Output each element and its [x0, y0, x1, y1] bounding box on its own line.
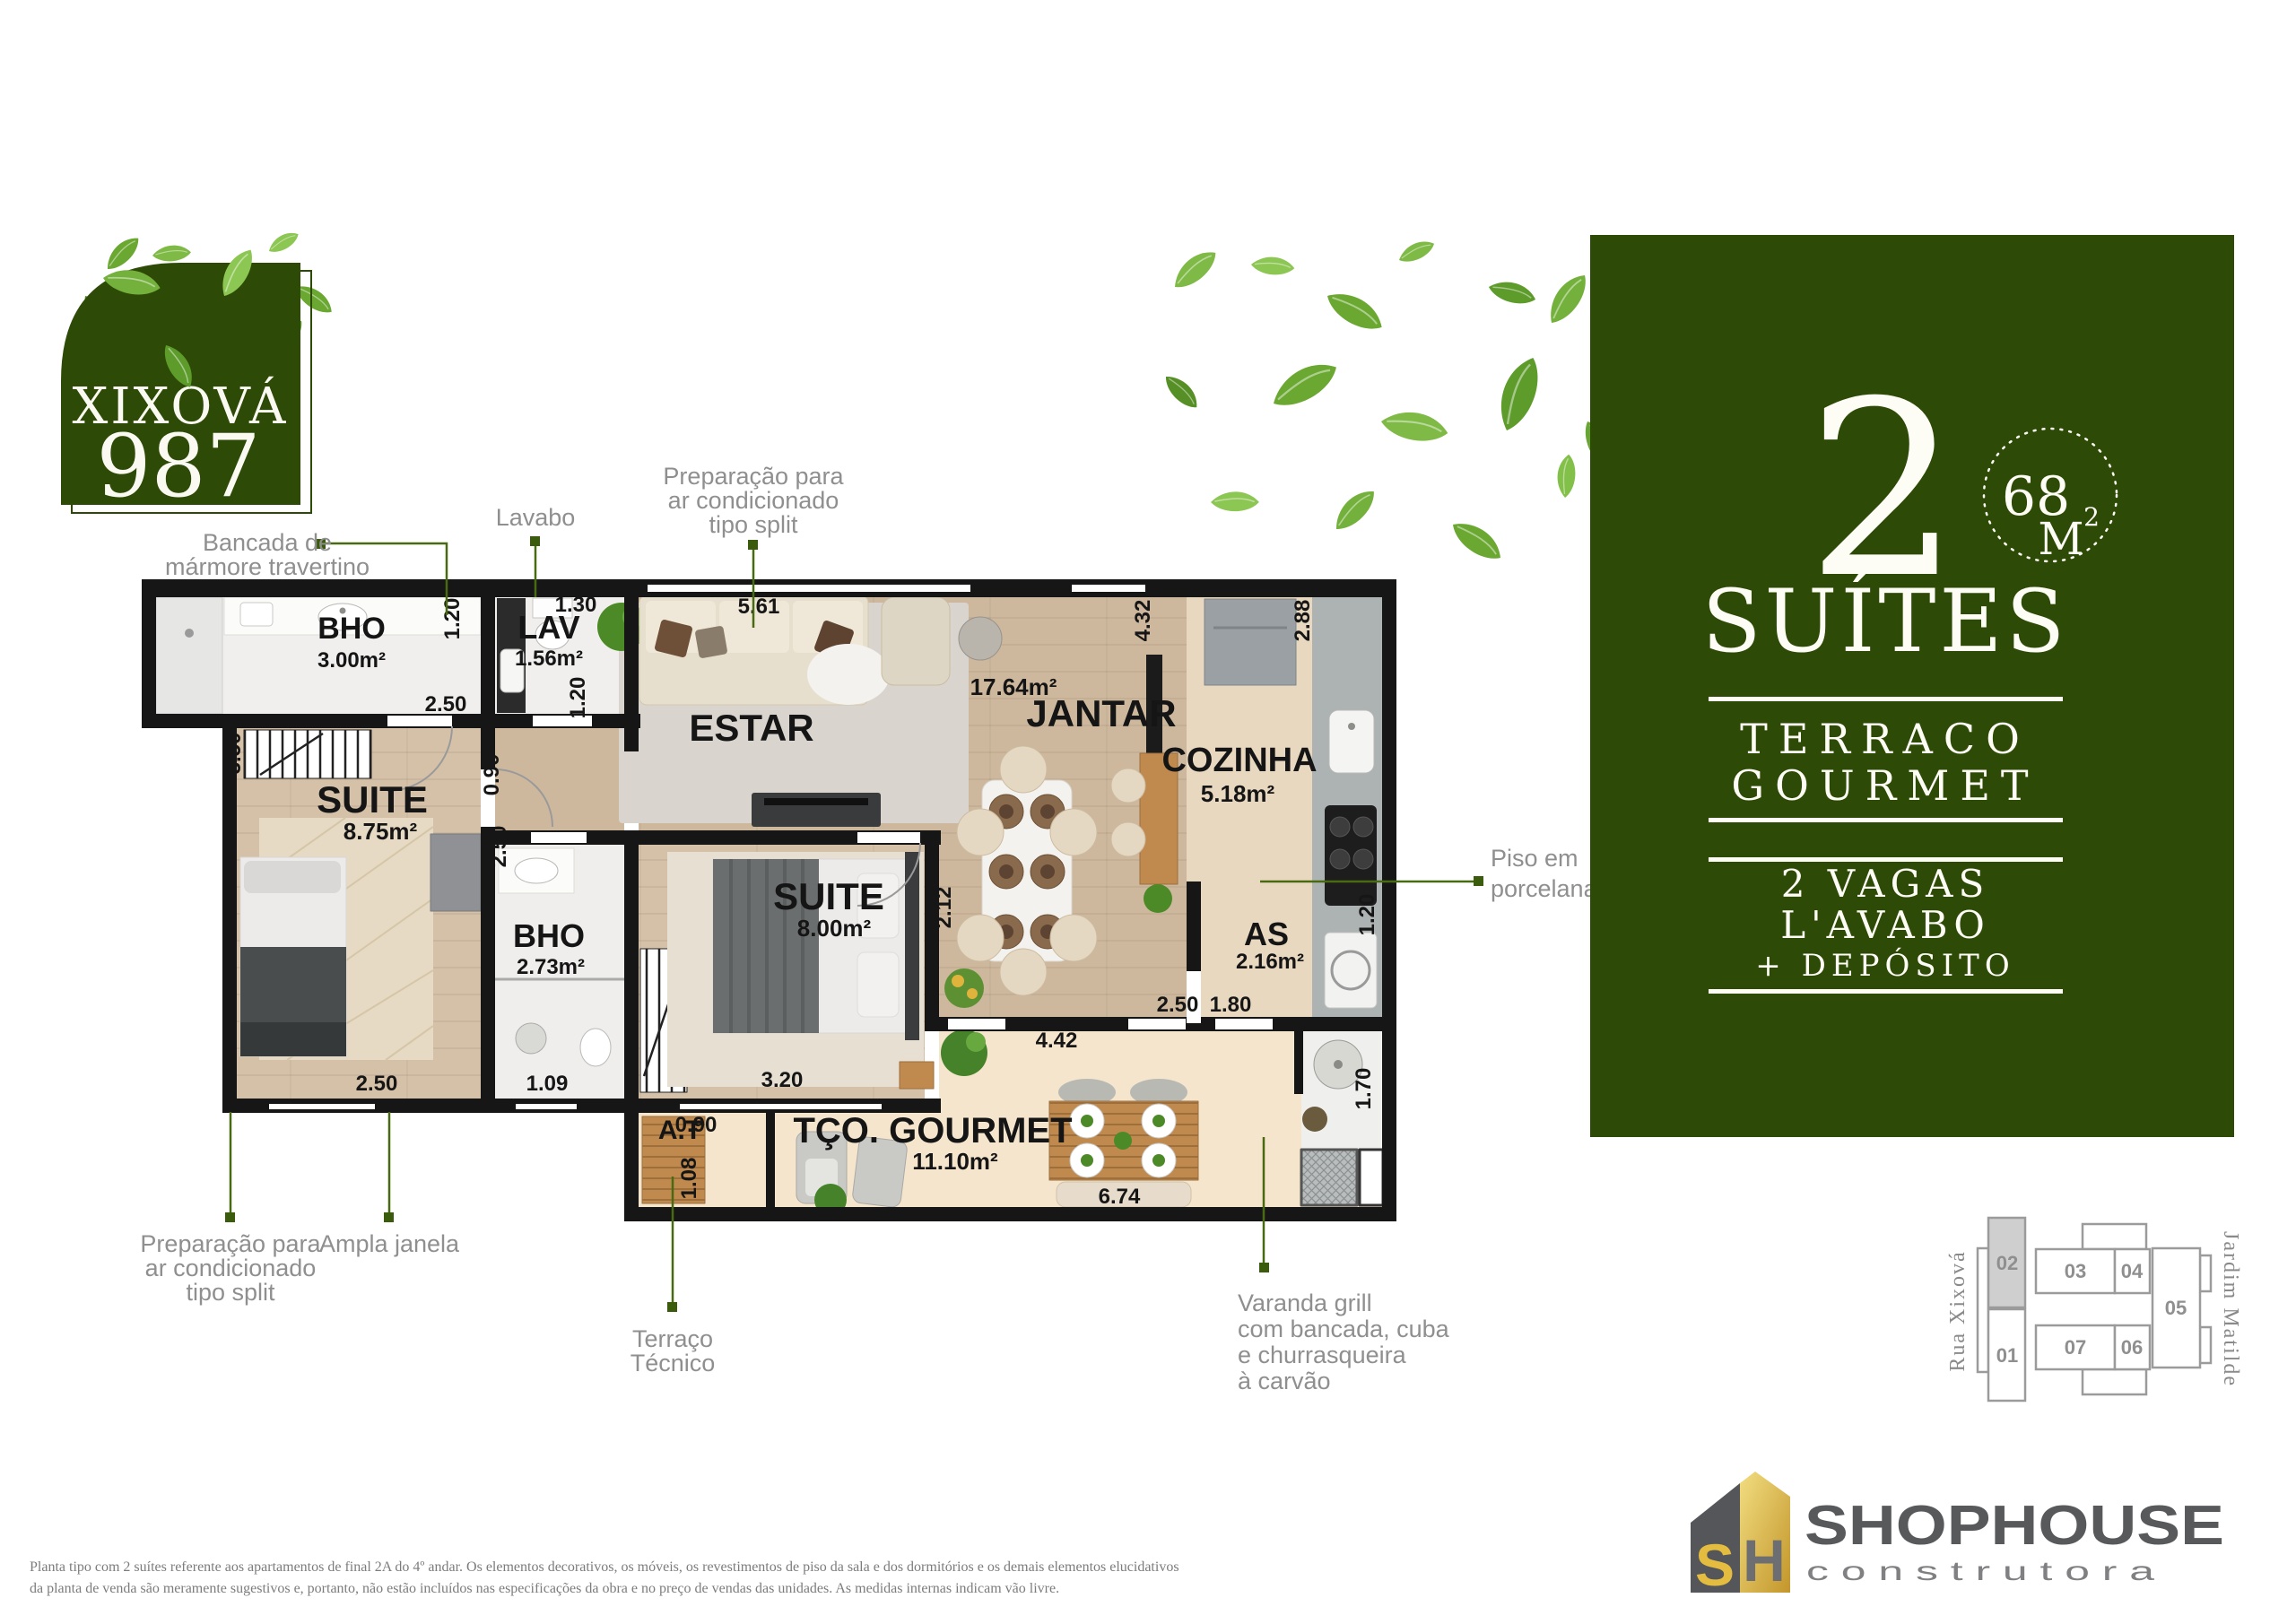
- room-area-suite2: 8.00m²: [797, 915, 872, 942]
- bho2-basin-icon: [515, 858, 558, 883]
- grill-counter: [1360, 1150, 1383, 1205]
- area-badge-sup: 2: [2083, 502, 2100, 532]
- dim-label: 0.90: [480, 754, 504, 796]
- pillow-icon: [857, 952, 899, 1017]
- dim-label: 0.90: [675, 1113, 717, 1137]
- room-area-cozinha: 5.18m²: [1201, 780, 1275, 807]
- callout-text: ar condicionado: [145, 1255, 317, 1281]
- callout-text: Técnico: [631, 1350, 716, 1376]
- logo-number: 987: [96, 416, 260, 517]
- dim-label: 4.32: [1131, 600, 1155, 642]
- bho1-shower: [156, 597, 222, 714]
- room-label-bho1: BHO: [317, 612, 386, 646]
- dim-label: 1.80: [1210, 993, 1252, 1017]
- panel-headline: SUÍTES: [1702, 571, 2068, 672]
- dim-label: 3.50: [222, 733, 246, 775]
- dim-label: 1.08: [677, 1158, 701, 1200]
- keyplan-label-04: 04: [2121, 1260, 2144, 1282]
- room-label-cozinha: COZINHA: [1161, 742, 1317, 779]
- fridge: [1205, 599, 1296, 685]
- keyplan-outline: [2200, 1255, 2211, 1291]
- keyplan-label-07: 07: [2065, 1336, 2086, 1359]
- divider: [1709, 818, 2063, 822]
- room-label-jantar: JANTAR: [1026, 692, 1176, 734]
- disclaimer-line2: da planta de venda são meramente sugesti…: [30, 1581, 1059, 1596]
- callout-text: Preparação para: [663, 463, 844, 490]
- dim-label: 1.20: [566, 677, 590, 719]
- divider: [1709, 989, 2063, 994]
- disclaimer-line1: Planta tipo com 2 suítes referente aos a…: [30, 1559, 1179, 1575]
- callout-text: Piso em: [1491, 845, 1578, 872]
- kitchen-sink-icon: [1329, 710, 1374, 773]
- callout-text: Ampla janela: [319, 1230, 460, 1257]
- panel-vagas: 2 VAGAS: [1781, 862, 1990, 906]
- keyplan-street-right: Jardim Matilde: [2219, 1231, 2242, 1387]
- area-badge-unit: M: [2038, 513, 2083, 565]
- panel-feature-line1: TERRACO: [1740, 715, 2031, 763]
- callout-text: e churrasqueira: [1238, 1342, 1407, 1368]
- decor-leaves-top-icon: [1163, 239, 1616, 570]
- info-panel: 2 68 M 2 SUÍTES TERRACO GOURMET 2 VAGAS …: [1590, 235, 2234, 1137]
- brand-name: SHOPHOUSE: [1805, 1495, 2224, 1557]
- dim-label: 4.42: [1036, 1029, 1078, 1053]
- room-area-lav: 1.56m²: [515, 647, 583, 671]
- tv-icon: [764, 798, 868, 805]
- room-area-as: 2.16m²: [1236, 950, 1304, 974]
- callout-text: tipo split: [186, 1279, 275, 1306]
- callout-text: à carvão: [1238, 1368, 1331, 1394]
- sofa-throw: [807, 644, 890, 705]
- dim-label: 1.70: [1352, 1068, 1376, 1110]
- side-table-icon: [959, 617, 1002, 660]
- room-area-bho2: 2.73m²: [517, 955, 585, 979]
- room-area-bho1: 3.00m²: [317, 648, 386, 673]
- room-label-suite2: SUITE: [773, 875, 884, 917]
- pillow-icon: [244, 861, 341, 893]
- keyplan-label-01: 01: [1996, 1344, 2018, 1367]
- keyplan-label-05: 05: [2165, 1297, 2187, 1319]
- room-area-gourmet: 11.10m²: [912, 1148, 998, 1175]
- divider: [1709, 697, 2063, 701]
- brand-mark-h: H: [1743, 1527, 1786, 1594]
- keyplan-outline: [2083, 1369, 2146, 1394]
- shower-drain-icon: [185, 629, 194, 638]
- callout-text: com bancada, cuba: [1238, 1316, 1450, 1342]
- marketing-floorplan-page: XIXOVÁ 987: [0, 0, 2296, 1624]
- callout-ampla: Ampla janela: [319, 1112, 460, 1257]
- dim-label: 1.30: [555, 593, 597, 617]
- callout-text: ar condicionado: [668, 487, 839, 514]
- keyplan: 02 01 03 04 07 06 05 Rua Xixová Jardim M…: [1946, 1218, 2242, 1401]
- dim-label: 1.09: [526, 1072, 569, 1096]
- keyplan-label-06: 06: [2121, 1336, 2143, 1359]
- room-label-as: AS: [1244, 916, 1289, 952]
- callout-text: Lavabo: [496, 504, 576, 531]
- keyplan-outline: [2083, 1224, 2146, 1249]
- bho1-accessory: [240, 603, 273, 626]
- nightstand: [900, 1062, 934, 1089]
- dim-label: 2.12: [932, 887, 956, 929]
- panel-feature-line2: GOURMET: [1731, 761, 2039, 810]
- callout-text: Bancada de: [203, 529, 332, 556]
- dim-label: 2.88: [1291, 600, 1315, 642]
- dim-label: 1.20: [1355, 894, 1379, 936]
- keyplan-outline: [2200, 1327, 2211, 1363]
- dim-label: 5.61: [738, 595, 780, 619]
- brand-mark-s: S: [1695, 1532, 1735, 1598]
- panel-lavabo: L'AVABO: [1780, 903, 1990, 947]
- churrasqueira: [1301, 1150, 1357, 1205]
- stool-icon: [1111, 822, 1145, 856]
- artboard: XIXOVÁ 987: [0, 0, 2296, 1624]
- bho2-toilet-icon: [580, 1029, 611, 1066]
- hall-floor: [495, 728, 624, 830]
- room-label-suite1: SUITE: [317, 778, 428, 821]
- dim-label: 1.20: [440, 598, 465, 640]
- keyplan-outline: [1978, 1248, 1988, 1372]
- plant-icon: [944, 968, 984, 1008]
- keyplan-street-left: Rua Xixová: [1946, 1250, 1970, 1371]
- suite1-dresser: [430, 834, 481, 911]
- callout-text: tipo split: [709, 511, 798, 538]
- disclaimer: Planta tipo com 2 suítes referente aos a…: [30, 1559, 1179, 1596]
- project-logo: XIXOVÁ 987: [61, 246, 311, 517]
- plant-icon: [1144, 884, 1172, 913]
- dim-label: 2.50: [487, 826, 511, 868]
- dim-label: 2.50: [1157, 993, 1199, 1017]
- room-label-estar: ESTAR: [689, 707, 813, 749]
- callout-text: mármore travertino: [165, 553, 370, 580]
- room-area-suite1: 8.75m²: [344, 818, 418, 845]
- callout-prep-bottom: Preparação para ar condicionado tipo spl…: [140, 1112, 321, 1306]
- callout-text: Preparação para: [140, 1230, 321, 1257]
- dim-label: 3.20: [761, 1068, 804, 1092]
- dim-label: 2.50: [356, 1072, 398, 1096]
- brand-tagline: c o n s t r u t o r a: [1806, 1557, 2155, 1586]
- stool-icon: [1111, 769, 1145, 803]
- panel-deposito: + DEPÓSITO: [1755, 947, 2014, 984]
- tv-console: [752, 793, 881, 827]
- callout-text: Varanda grill: [1238, 1290, 1372, 1316]
- brand-logo: S H SHOPHOUSE c o n s t r u t o r a: [1691, 1472, 2224, 1598]
- keyplan-label-02: 02: [1996, 1252, 2018, 1274]
- plant-icon: [1302, 1107, 1327, 1132]
- suite1-wardrobe: [244, 730, 371, 778]
- room-label-bho2: BHO: [513, 917, 585, 954]
- dim-label: 2.50: [425, 692, 467, 716]
- shower-head-icon: [516, 1023, 546, 1054]
- keyplan-label-03: 03: [2065, 1260, 2086, 1282]
- dim-label: 6.74: [1099, 1185, 1141, 1209]
- callout-text: Terraço: [632, 1325, 713, 1352]
- armchair: [882, 597, 950, 685]
- room-label-gourmet: TÇO. GOURMET: [793, 1111, 1072, 1151]
